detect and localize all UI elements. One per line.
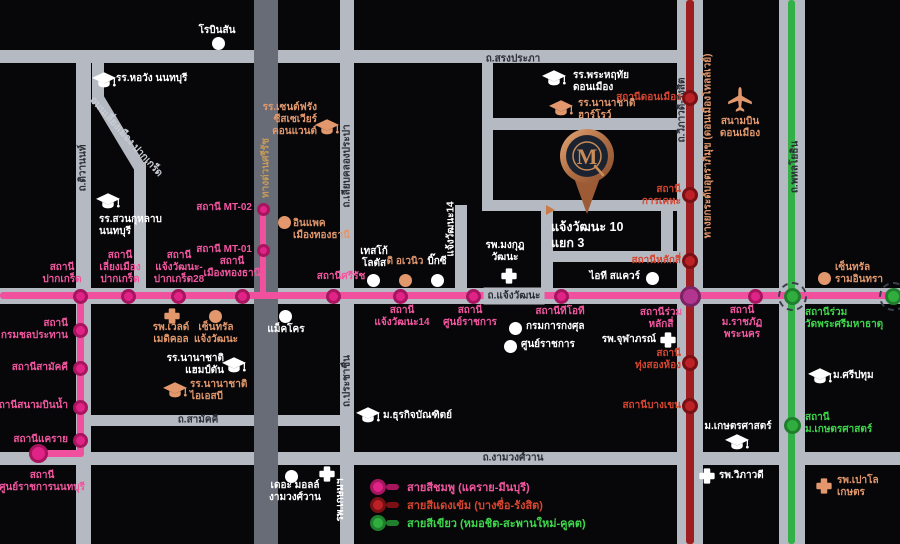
legend-line-marker-icon bbox=[370, 497, 386, 513]
landmark-label: เดอะ มอลล์ งามวงศ์วาน bbox=[269, 480, 321, 504]
landmark-label: รร.เซนต์ฟรัง ซีสเซเวียร์ คอนแวนต์ bbox=[263, 102, 317, 138]
poi-dot-icon bbox=[212, 37, 225, 50]
station-label: สถานีร่วม วัดพระศรีมหาธาตุ bbox=[805, 307, 883, 331]
hospital-cross-icon bbox=[501, 268, 517, 284]
legend-label: สายสีเขียว (หมอชิต-สะพานใหม่-คูคต) bbox=[407, 514, 586, 532]
poi-dot-icon bbox=[279, 310, 292, 323]
station-marker bbox=[466, 289, 481, 304]
road-label: แจ้งวัฒนะ14 bbox=[444, 201, 459, 256]
landmark-label: เซ็นทรัล แจ้งวัฒนะ bbox=[194, 322, 238, 346]
landmark-label: บิ๊กซี bbox=[427, 256, 446, 268]
hospital-cross-icon bbox=[319, 466, 335, 482]
landmark-label: รร.นานาชาติ ไอเอสบี bbox=[190, 379, 247, 403]
station-label: สถานีศรีรัช bbox=[317, 271, 366, 283]
airplane-icon bbox=[728, 87, 752, 113]
station-marker bbox=[326, 289, 341, 304]
station-marker bbox=[29, 444, 48, 463]
road-label: ถ.วิภาวดี-รังสิต bbox=[675, 78, 690, 143]
location-map: M แจ้งวัฒนะ 10 แยก 3 ถ.สรงประภาถ.แจ้งวัฒ… bbox=[0, 0, 900, 544]
station-marker bbox=[784, 288, 801, 305]
station-marker bbox=[171, 289, 186, 304]
school-icon bbox=[163, 382, 187, 399]
station-marker bbox=[682, 90, 698, 106]
station-label: สถานีสนามบินน้ำ bbox=[0, 400, 68, 412]
poi-dot-icon bbox=[431, 274, 444, 287]
poi-dot-icon bbox=[818, 272, 831, 285]
station-marker bbox=[682, 398, 698, 414]
station-marker bbox=[680, 286, 701, 307]
station-marker bbox=[73, 289, 88, 304]
station-label: สถานีทีโอที bbox=[535, 306, 584, 318]
station-label: สถานีร่วม หลักสี่ bbox=[640, 307, 682, 331]
landmark-label: รร.นานาชาติ ฮาร์โรว์ bbox=[578, 98, 635, 122]
legend-label: สายสีแดงเข้ม (บางซื่อ-รังสิต) bbox=[407, 496, 543, 514]
station-label: สถานี แจ้งวัฒนะ14 bbox=[374, 305, 429, 329]
poi-dot-icon bbox=[278, 216, 291, 229]
station-label: สถานี ศูนย์ราชการนนทบุรี bbox=[0, 470, 85, 494]
station-marker bbox=[682, 253, 698, 269]
station-label: สถานีสามัคคี bbox=[12, 362, 68, 374]
landmark-label: อินแพค เมืองทองธานี bbox=[293, 218, 350, 242]
landmark-label: รพ.เกษมฯ bbox=[335, 478, 347, 521]
landmark-label: ดิ อเวนิว bbox=[387, 256, 424, 268]
landmark-label: รพ.มงกุฎ วัฒนะ bbox=[486, 240, 525, 264]
station-marker bbox=[257, 244, 270, 257]
poi-dot-icon bbox=[367, 274, 380, 287]
school-icon bbox=[542, 70, 566, 87]
landmark-label: เทสโก้ โลตัส bbox=[360, 246, 388, 270]
school-icon bbox=[96, 193, 120, 210]
station-marker bbox=[682, 187, 698, 203]
station-label: สถานี เมืองทองธานี bbox=[204, 256, 261, 280]
station-marker bbox=[235, 289, 250, 304]
landmark-label: รร.สวนกุหลาบ นนทบุรี bbox=[99, 214, 162, 238]
poi-dot-icon bbox=[509, 322, 522, 335]
station-label: สถานี MT-02 bbox=[196, 202, 252, 214]
road-label: ถ.แจ้งวัฒนะ bbox=[484, 288, 545, 305]
landmark-label: เซ็นทรัล รามอินทรา bbox=[835, 262, 883, 286]
school-icon bbox=[222, 357, 246, 374]
project-pin: M bbox=[556, 127, 618, 220]
hospital-cross-icon bbox=[816, 478, 832, 494]
school-icon bbox=[725, 434, 749, 451]
road-label: ถ.เลียบคลองประปา bbox=[340, 124, 355, 207]
station-label: สถานีหลักสี่ bbox=[632, 255, 682, 267]
station-marker bbox=[784, 417, 801, 434]
road-songprapha-link bbox=[482, 50, 493, 210]
school-icon bbox=[92, 72, 116, 89]
landmark-label: รพ.วิภาวดี bbox=[719, 470, 764, 482]
road-label: ถ.สามัคคี bbox=[178, 413, 219, 428]
landmark-label: ม.ธุรกิจบัณฑิตย์ bbox=[383, 410, 452, 422]
project-address-label: แจ้งวัฒนะ 10 แยก 3 bbox=[551, 219, 623, 252]
station-marker bbox=[257, 203, 270, 216]
legend-line-stem bbox=[386, 502, 399, 508]
station-marker bbox=[748, 289, 763, 304]
station-marker bbox=[393, 289, 408, 304]
road-label: ทางด่วนศรีรัช bbox=[259, 138, 274, 198]
transit-line-green bbox=[788, 0, 795, 544]
station-label: สถานี ทุ่งสองห้อง bbox=[635, 348, 681, 372]
legend-label: สายสีชมพู (แคราย-มีนบุรี) bbox=[407, 478, 530, 496]
hospital-cross-icon bbox=[660, 332, 676, 348]
landmark-label: รร.หอวัง นนทบุรี bbox=[116, 73, 187, 85]
station-marker bbox=[73, 433, 88, 448]
school-icon bbox=[315, 119, 339, 136]
poi-dot-icon bbox=[209, 310, 222, 323]
poi-dot-icon bbox=[399, 274, 412, 287]
station-marker bbox=[554, 289, 569, 304]
legend-line-stem bbox=[386, 520, 399, 526]
school-icon bbox=[549, 100, 573, 117]
landmark-label: แม็คโคร bbox=[267, 324, 304, 336]
station-label: สถานี ปากเกร็ด bbox=[42, 262, 81, 286]
station-label: สถานี ม.ราชภัฏ พระนคร bbox=[722, 305, 762, 341]
poi-dot-icon bbox=[646, 272, 659, 285]
landmark-label: รร.นานาชาติ แฮมป์ตัน bbox=[167, 353, 224, 377]
station-marker bbox=[73, 323, 88, 338]
station-label: สถานี เลี่ยงเมือง ปากเกร็ด bbox=[99, 250, 140, 286]
landmark-label: รพ.เปาโล เกษตร bbox=[837, 475, 879, 499]
station-marker bbox=[885, 288, 900, 305]
landmark-label: สนามบิน ดอนเมือง bbox=[720, 116, 760, 140]
road-label: ถนนเลี่ยงเมือง ปากเกร็ด bbox=[86, 94, 166, 181]
landmark-label: รร.พระหฤทัย ดอนเมือง bbox=[573, 70, 629, 94]
station-label: สถานี MT-01 bbox=[196, 244, 252, 256]
road-label: ทางยกระดับอุตราภิมุข (ดอนเมืองโทลล์เวย์) bbox=[701, 54, 716, 239]
legend-line-marker-icon bbox=[370, 479, 386, 495]
station-label: สถานี ม.เกษตรศาสตร์ bbox=[805, 412, 872, 436]
landmark-label: รพ.เว็ลด์ เมดิคอล bbox=[153, 322, 189, 346]
road-label: ถ.พหลโยธิน bbox=[788, 141, 803, 193]
landmark-label: กรมการกงศุล bbox=[526, 321, 584, 333]
landmark-label: โรบินสัน bbox=[199, 25, 236, 37]
station-marker bbox=[73, 400, 88, 415]
road-label: ถ.งามวงศ์วาน bbox=[483, 451, 544, 466]
school-icon bbox=[808, 368, 832, 385]
road-label: ถ.ประชาชื่น bbox=[340, 355, 355, 407]
landmark-label: ม.ศรีปทุม bbox=[833, 370, 874, 382]
school-icon bbox=[356, 407, 380, 424]
station-marker bbox=[73, 361, 88, 376]
landmark-label: ศูนย์ราชการ bbox=[521, 339, 575, 351]
hospital-cross-icon bbox=[699, 468, 715, 484]
station-label: สถานี การเคหะ bbox=[642, 184, 681, 208]
road-label: ถ.ติวานนท์ bbox=[76, 145, 91, 192]
station-label: สถานี ศูนย์ราชการ bbox=[443, 305, 497, 329]
poi-dot-icon bbox=[504, 340, 517, 353]
legend-line-stem bbox=[386, 484, 399, 490]
landmark-label: รพ.จุฬาภรณ์ bbox=[602, 334, 656, 346]
road-samakkhi bbox=[86, 415, 352, 426]
landmark-label: ม.เกษตรศาสตร์ bbox=[704, 421, 771, 433]
road-label: ถ.สรงประภา bbox=[486, 52, 541, 67]
station-label: สถานีบางเขน bbox=[622, 400, 681, 412]
station-label: สถานี กรมชลประทาน bbox=[1, 318, 68, 342]
station-marker bbox=[682, 355, 698, 371]
road-ngamwongwan bbox=[0, 452, 900, 465]
pin-pointer-icon bbox=[546, 205, 555, 215]
station-marker bbox=[121, 289, 136, 304]
landmark-label: ไอที สแควร์ bbox=[589, 271, 640, 283]
legend-line-marker-icon bbox=[370, 515, 386, 531]
